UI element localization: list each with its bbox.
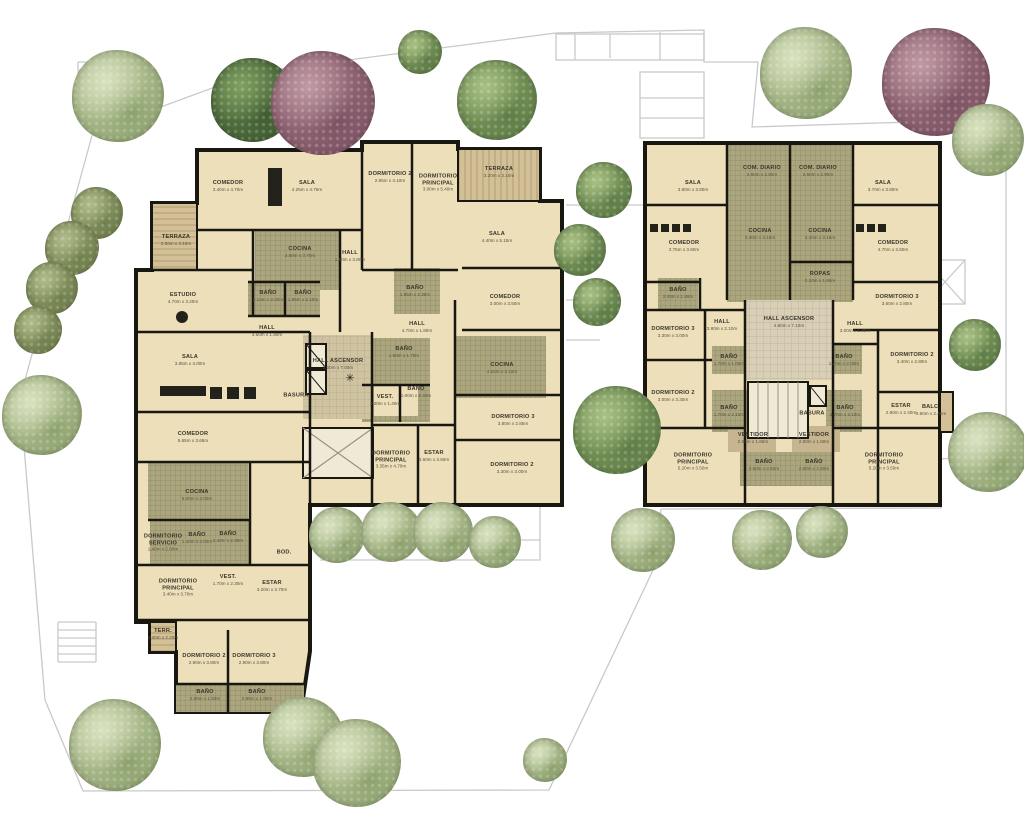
compass-icon: ✳: [345, 372, 354, 385]
building-b: [645, 143, 953, 505]
core-a: [303, 335, 373, 478]
floor-plan-canvas: COMEDOR3.40m x 4.70mSALA4.25m x 4.75mTER…: [0, 0, 1024, 819]
building-a: [136, 142, 562, 712]
site-and-buildings-drawing: [0, 0, 1024, 819]
